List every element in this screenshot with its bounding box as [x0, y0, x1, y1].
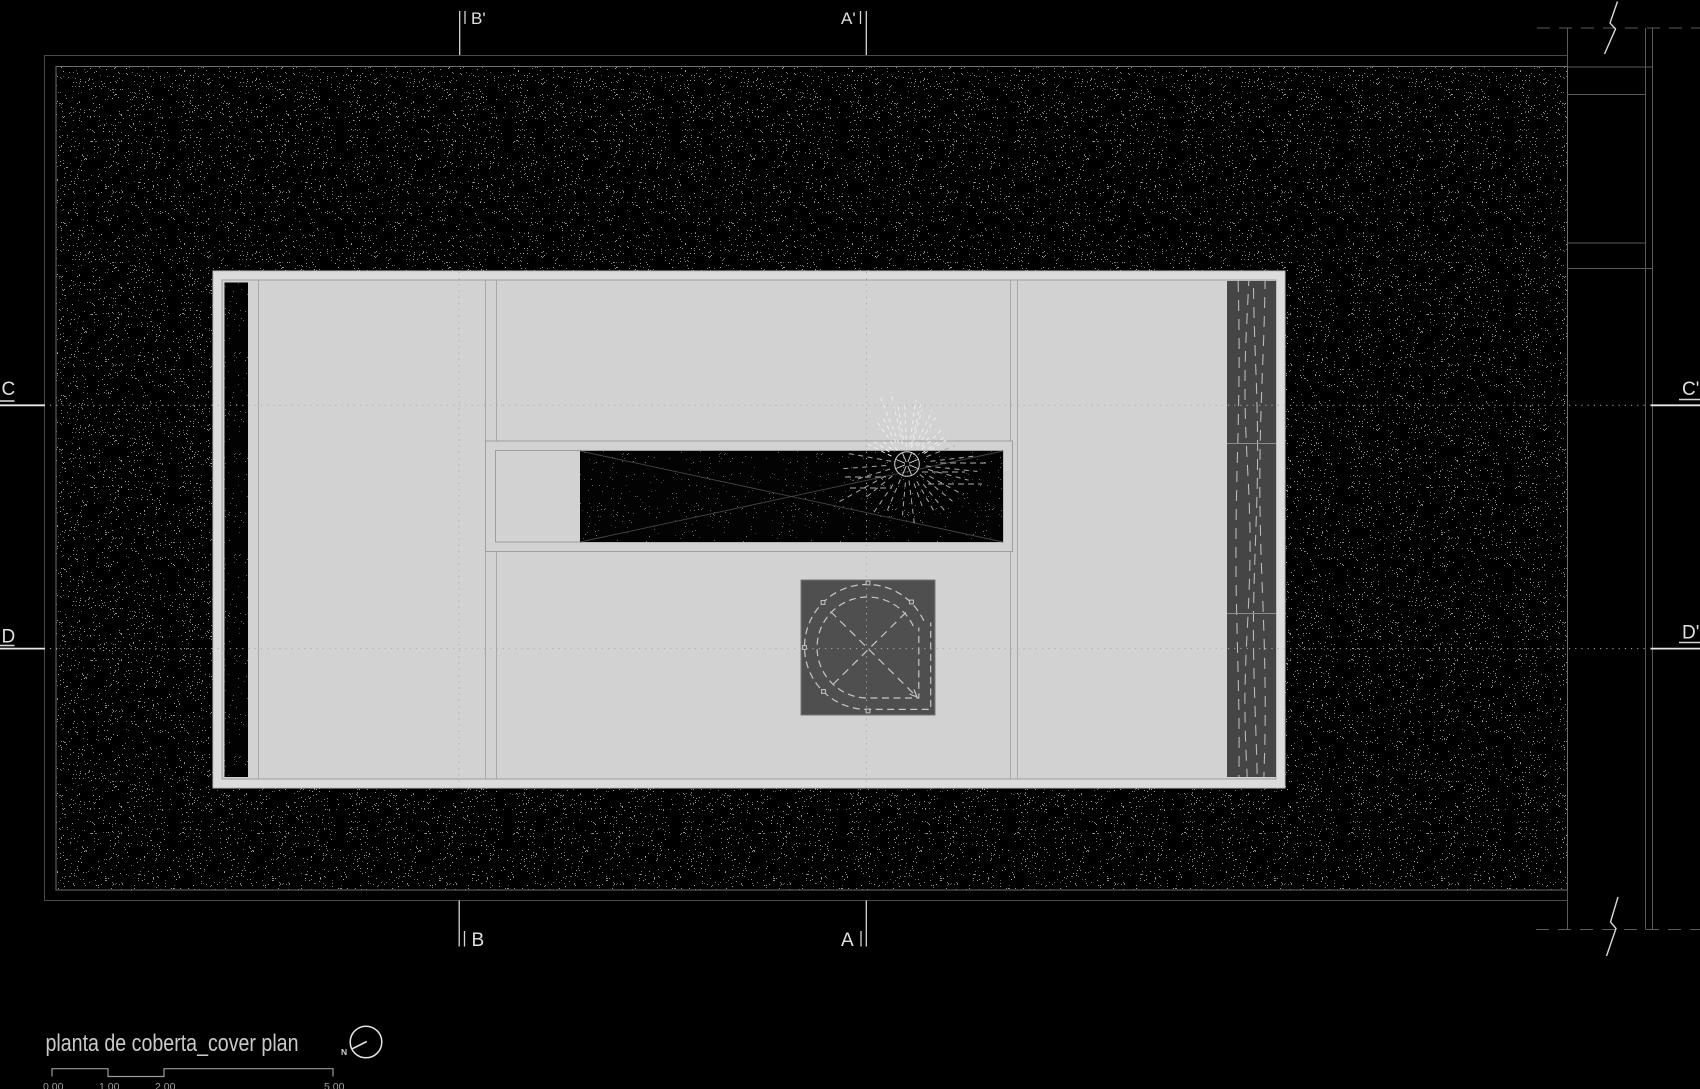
svg-text:0.00: 0.00 [43, 1081, 64, 1089]
svg-text:D': D' [1682, 623, 1699, 644]
svg-text:D: D [2, 627, 16, 648]
svg-text:C: C [2, 379, 16, 400]
svg-text:B': B' [471, 9, 486, 28]
svg-text:C': C' [1682, 379, 1699, 400]
svg-text:N: N [341, 1047, 347, 1057]
svg-text:A: A [841, 930, 854, 951]
svg-text:1.00: 1.00 [99, 1081, 120, 1089]
svg-text:2.00: 2.00 [155, 1081, 176, 1089]
svg-text:B: B [472, 930, 485, 951]
svg-text:A': A' [841, 9, 856, 28]
svg-text:5.00: 5.00 [324, 1081, 345, 1089]
svg-text:planta de coberta_cover plan: planta de coberta_cover plan [46, 1030, 299, 1057]
